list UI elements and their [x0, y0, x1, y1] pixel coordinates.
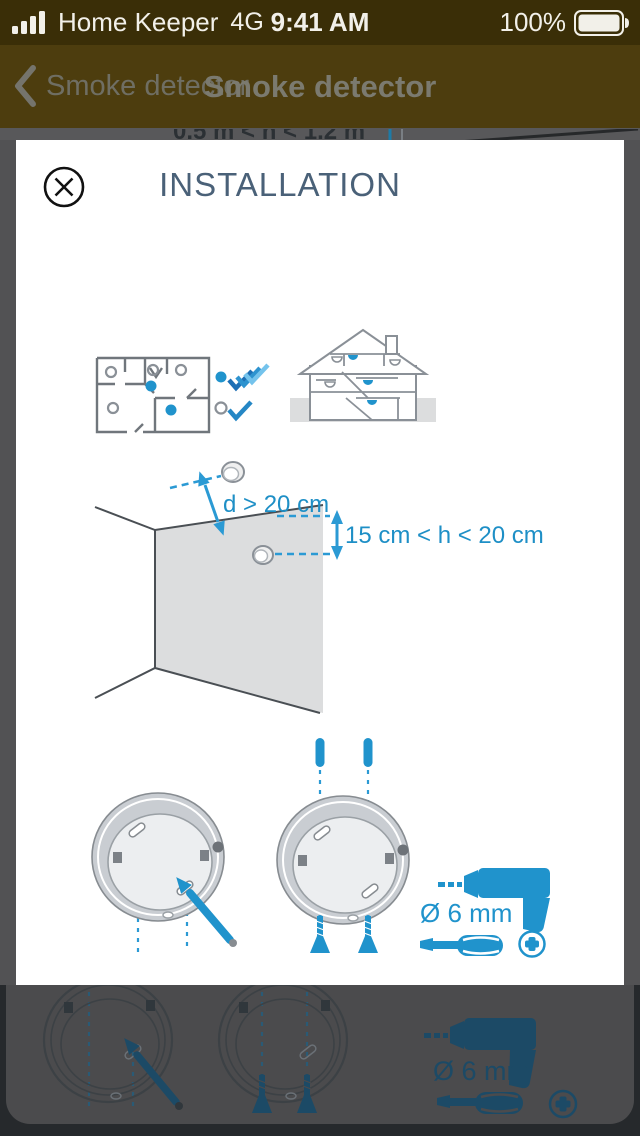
status-right-group: 100% — [500, 7, 633, 38]
status-bar: Home Keeper 4G 9:41 AM 100% — [0, 0, 640, 45]
background-dimmed-diagram: Ø 6 mm — [6, 985, 634, 1124]
installation-modal: INSTALLATION — [16, 140, 624, 985]
house-cross-section-diagram — [288, 322, 438, 422]
phillips-screw-icon — [550, 1091, 576, 1117]
phone-screen: Home Keeper 4G 9:41 AM 100% Smoke detect… — [0, 0, 640, 1136]
screwdriver-icon — [420, 935, 503, 956]
dim-overlay-left — [0, 140, 16, 985]
dimmed-page-card: Ø 6 mm — [6, 985, 634, 1124]
ceiling-distance-label: d > 20 cm — [223, 491, 329, 518]
wall-plug-icon — [316, 738, 373, 767]
dashed-guides — [89, 992, 307, 1106]
modal-title: INSTALLATION — [60, 166, 500, 204]
ceiling-detector-icon — [222, 462, 244, 482]
detector-base-icon — [219, 985, 347, 1102]
back-chevron-icon — [12, 63, 38, 109]
screwdriver-icon — [437, 1092, 523, 1114]
wall-height-label: 15 cm < h < 20 cm — [345, 522, 544, 549]
wall-mounting-diagram: d > 20 cm 15 cm < h < 20 cm — [90, 455, 570, 725]
drill-diameter-label: Ø 6 mm — [420, 898, 512, 928]
dimmed-page-top-strip: 0.5 m < h < 1.2 m — [0, 128, 640, 140]
dimmed-page-bottom: Ø 6 mm — [0, 985, 640, 1136]
phillips-screw-icon — [520, 932, 545, 957]
drill-diameter-label: Ø 6 mm — [433, 1056, 529, 1086]
clipped-heading: 0.5 m < h < 1.2 m — [173, 129, 365, 140]
detector-base-icon — [277, 796, 409, 924]
floor-plan-diagram — [95, 350, 275, 440]
dim-overlay-right — [624, 140, 640, 985]
height-arrow — [331, 510, 343, 560]
tools-diagram: Ø 6 mm — [415, 860, 615, 965]
house-outline — [300, 330, 426, 420]
detector-base-icon — [92, 793, 224, 921]
wall-face — [155, 505, 323, 713]
battery-percent: 100% — [500, 7, 567, 38]
top-clipped-diagram: 0.5 m < h < 1.2 m — [0, 129, 640, 140]
nav-bar: Smoke detector Smoke detector — [0, 45, 640, 128]
dashed-guide — [170, 476, 221, 488]
detector-base-icon — [44, 985, 172, 1102]
base-mounting-diagram — [75, 735, 445, 970]
page-title: Smoke detector — [204, 69, 437, 105]
checkmark-icon — [229, 402, 251, 418]
wall-detector-icon — [253, 546, 273, 564]
battery-icon — [574, 9, 632, 37]
legend-checkmarks — [216, 365, 269, 418]
